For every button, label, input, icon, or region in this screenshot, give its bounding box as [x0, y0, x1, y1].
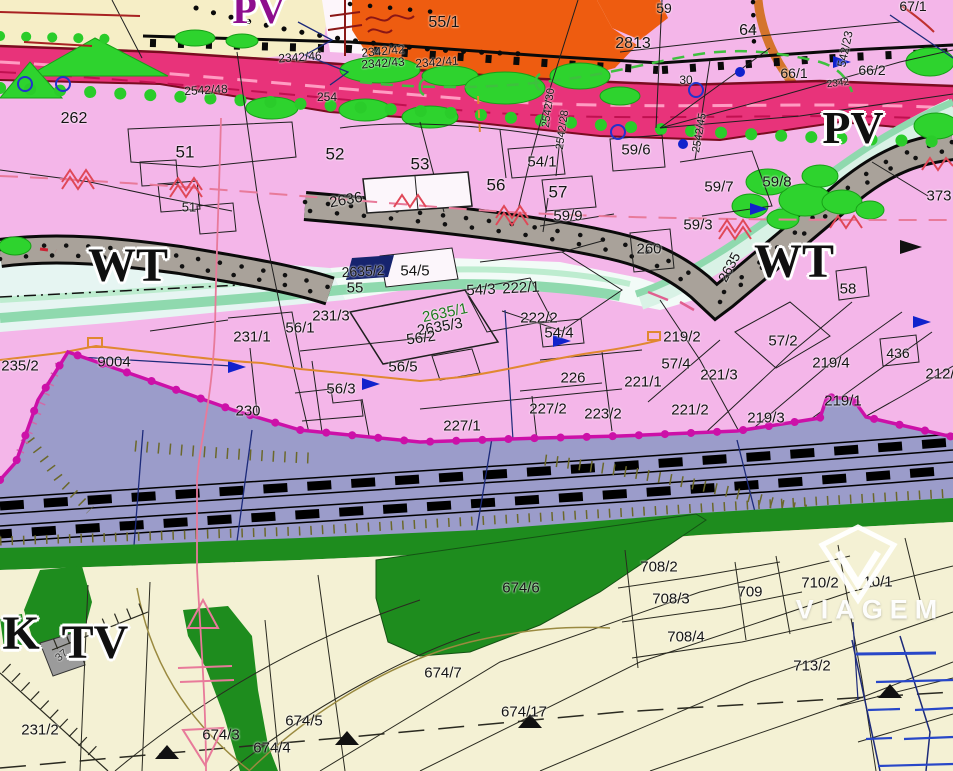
parcel-flag: [346, 255, 394, 280]
map-graphics: [0, 0, 953, 771]
map-canvas[interactable]: PVPVWTWTKTV2342/462342/422342/432342/412…: [0, 0, 953, 771]
